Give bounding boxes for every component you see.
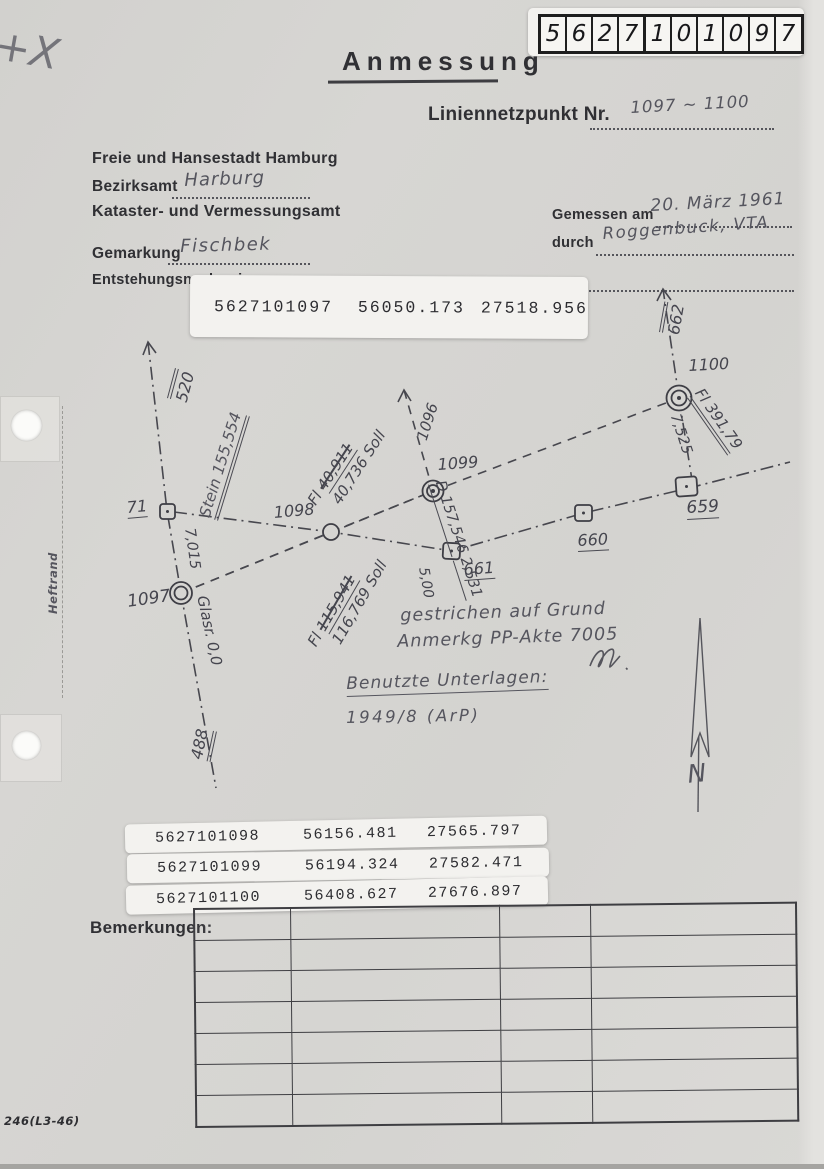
sketch-label-1099: 1099 <box>437 452 479 474</box>
sketch-label-659: 659 <box>686 496 720 520</box>
point-dot-1100 <box>677 396 681 400</box>
north-arrow-head <box>691 618 709 757</box>
table-row <box>196 1089 798 1127</box>
form-number: 246(L3-46) <box>4 1114 80 1128</box>
strip-point-id: 5627101098 <box>155 827 303 847</box>
survey-line-520-488 <box>148 342 216 788</box>
survey-line-1097-1098 <box>181 532 331 593</box>
sketch-label-71: 71 <box>126 496 148 519</box>
strip-northing: 27676.897 <box>428 883 523 902</box>
strip-easting: 56194.324 <box>305 856 429 875</box>
sketch-label-661: 661 <box>463 558 495 581</box>
sketch-label-1100: 1100 <box>688 354 730 375</box>
point-marker-1097 <box>175 587 188 600</box>
strip-point-id: 5627101100 <box>156 888 304 908</box>
strip-point-id: 5627101099 <box>157 858 305 877</box>
survey-line-1099-1100 <box>433 398 679 491</box>
north-label: N <box>686 758 708 789</box>
strip-easting: 56408.627 <box>304 885 428 905</box>
point-dot-71 <box>166 510 169 513</box>
remarks-table <box>193 902 799 1128</box>
sources-value: 1949/8 (ArP) <box>346 706 481 727</box>
signature-mark <box>590 649 628 669</box>
arrowhead-1096 <box>398 390 411 402</box>
strip-easting: 56156.481 <box>303 824 427 844</box>
scanned-survey-document: Heftrand +X 5 6 2 7 1 0 1 0 9 7 Anmessun… <box>0 0 824 1169</box>
strip-northing: 27565.797 <box>427 822 522 841</box>
sketch-label-1098: 1098 <box>273 499 315 521</box>
point-marker-1098 <box>323 524 339 540</box>
point-dot-660 <box>582 512 585 515</box>
sketch-label-660: 660 <box>577 529 609 552</box>
point-dot-659 <box>685 485 688 488</box>
strip-northing: 27582.471 <box>429 854 524 872</box>
